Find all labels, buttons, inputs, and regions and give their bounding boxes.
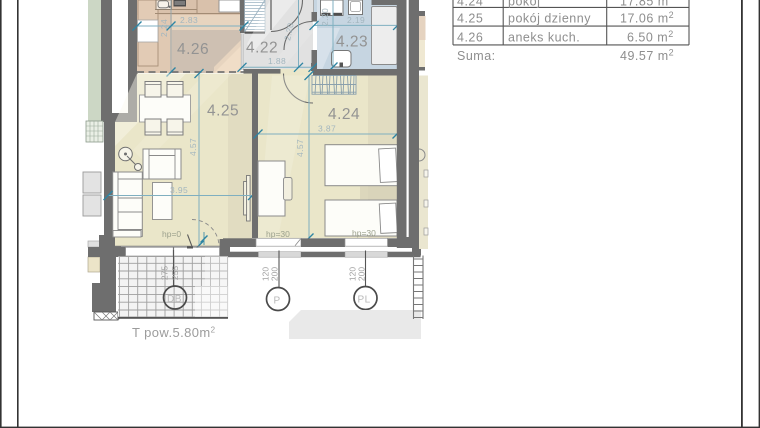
svg-text:4.26: 4.26 xyxy=(457,31,483,45)
svg-text:200: 200 xyxy=(357,267,367,281)
svg-text:hp=30: hp=30 xyxy=(352,228,376,238)
svg-text:4.57: 4.57 xyxy=(188,138,198,156)
svg-text:T pow.5.80m2: T pow.5.80m2 xyxy=(132,325,216,340)
svg-text:4.23: 4.23 xyxy=(336,34,368,51)
svg-text:hp=0: hp=0 xyxy=(162,229,181,239)
svg-text:aneks kuch.: aneks kuch. xyxy=(508,31,580,45)
svg-text:1.88: 1.88 xyxy=(268,56,286,66)
svg-text:2.24: 2.24 xyxy=(159,19,169,37)
svg-text:6.50 m2: 6.50 m2 xyxy=(627,29,674,45)
svg-text:4.22: 4.22 xyxy=(246,40,278,57)
svg-text:4.24: 4.24 xyxy=(328,106,360,123)
svg-text:PL: PL xyxy=(358,295,371,306)
svg-text:pokój: pokój xyxy=(508,0,540,9)
svg-text:hp=30: hp=30 xyxy=(266,229,290,239)
svg-text:3.87: 3.87 xyxy=(318,124,336,134)
svg-text:4.57: 4.57 xyxy=(295,139,305,157)
svg-text:4.26: 4.26 xyxy=(177,41,209,58)
svg-text:P: P xyxy=(274,296,281,307)
svg-text:3.95: 3.95 xyxy=(170,185,188,195)
svg-text:200: 200 xyxy=(270,267,280,281)
svg-text:255: 255 xyxy=(170,266,180,280)
svg-text:17.06 m2: 17.06 m2 xyxy=(620,10,674,26)
svg-text:49.57 m2: 49.57 m2 xyxy=(620,48,674,64)
svg-text:4.24: 4.24 xyxy=(457,0,483,9)
svg-text:pokój dzienny: pokój dzienny xyxy=(508,12,591,26)
svg-text:2.19: 2.19 xyxy=(347,15,365,25)
svg-text:4.25: 4.25 xyxy=(207,103,239,120)
svg-text:17.85 m: 17.85 m xyxy=(620,0,669,9)
svg-text:275: 275 xyxy=(160,266,170,280)
svg-text:4.25: 4.25 xyxy=(457,12,483,26)
svg-text:2.83: 2.83 xyxy=(180,15,198,25)
svg-text:DB: DB xyxy=(167,294,182,305)
svg-text:Suma:: Suma: xyxy=(457,49,496,63)
svg-text:2.20: 2.20 xyxy=(320,8,330,26)
